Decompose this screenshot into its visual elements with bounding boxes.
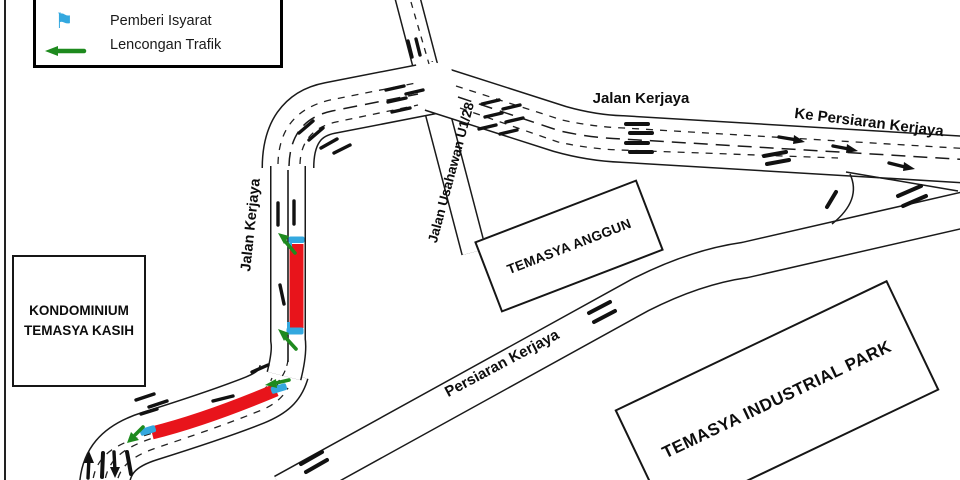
- legend-row-diversion-arrow: Lencongan Trafik: [36, 33, 280, 57]
- signal-flag-icon: ⚑: [44, 11, 84, 32]
- kondominium-temasya-kasih-box: KONDOMINIUM TEMASYA KASIH: [12, 255, 146, 387]
- kondominium-temasya-kasih-label: KONDOMINIUM TEMASYA KASIH: [24, 301, 134, 342]
- road-label-jalan-kerjaya-east: Jalan Kerjaya: [586, 90, 696, 107]
- road-jalan-kerjaya-curve-west: [288, 87, 438, 168]
- temasya-anggun-label: TEMASYA ANGGUN: [505, 215, 633, 276]
- legend-box: ⚑ Pemberi Isyarat Lencongan Trafik: [33, 0, 283, 68]
- legend-label: Pemberi Isyarat: [110, 13, 212, 29]
- legend-row-signal-flag: ⚑ Pemberi Isyarat: [36, 9, 280, 33]
- legend-label: Lencongan Trafik: [110, 37, 221, 53]
- traffic-diversion-map: KONDOMINIUM TEMASYA KASIH TEMASYA ANGGUN…: [0, 0, 960, 480]
